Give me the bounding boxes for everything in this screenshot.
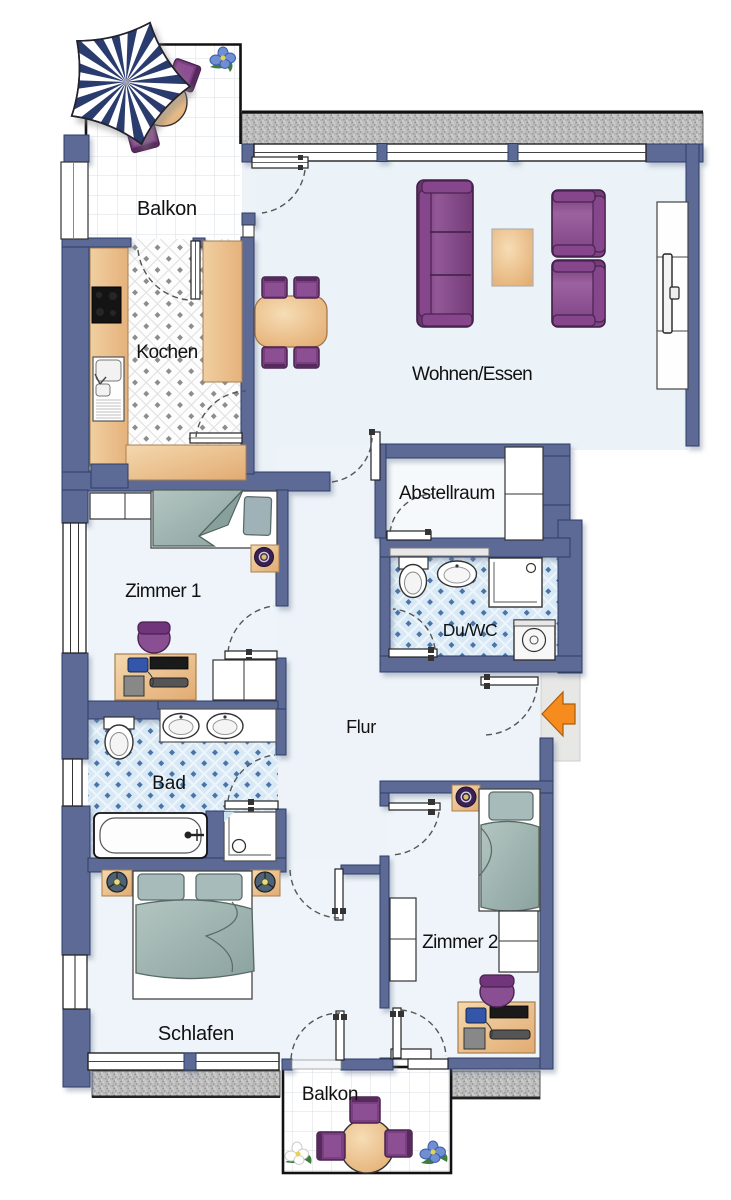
- svg-text:Balkon: Balkon: [137, 198, 197, 220]
- svg-text:Zimmer 2: Zimmer 2: [422, 932, 498, 953]
- svg-text:Balkon: Balkon: [302, 1084, 358, 1105]
- svg-text:Bad: Bad: [152, 773, 186, 794]
- svg-text:Abstellraum: Abstellraum: [399, 483, 495, 504]
- svg-text:Flur: Flur: [346, 717, 376, 737]
- svg-text:Wohnen/Essen: Wohnen/Essen: [412, 364, 532, 385]
- svg-text:Zimmer 1: Zimmer 1: [125, 581, 201, 602]
- svg-text:Du/WC: Du/WC: [443, 620, 497, 640]
- svg-text:Kochen: Kochen: [136, 342, 197, 363]
- svg-text:Schlafen: Schlafen: [158, 1023, 234, 1045]
